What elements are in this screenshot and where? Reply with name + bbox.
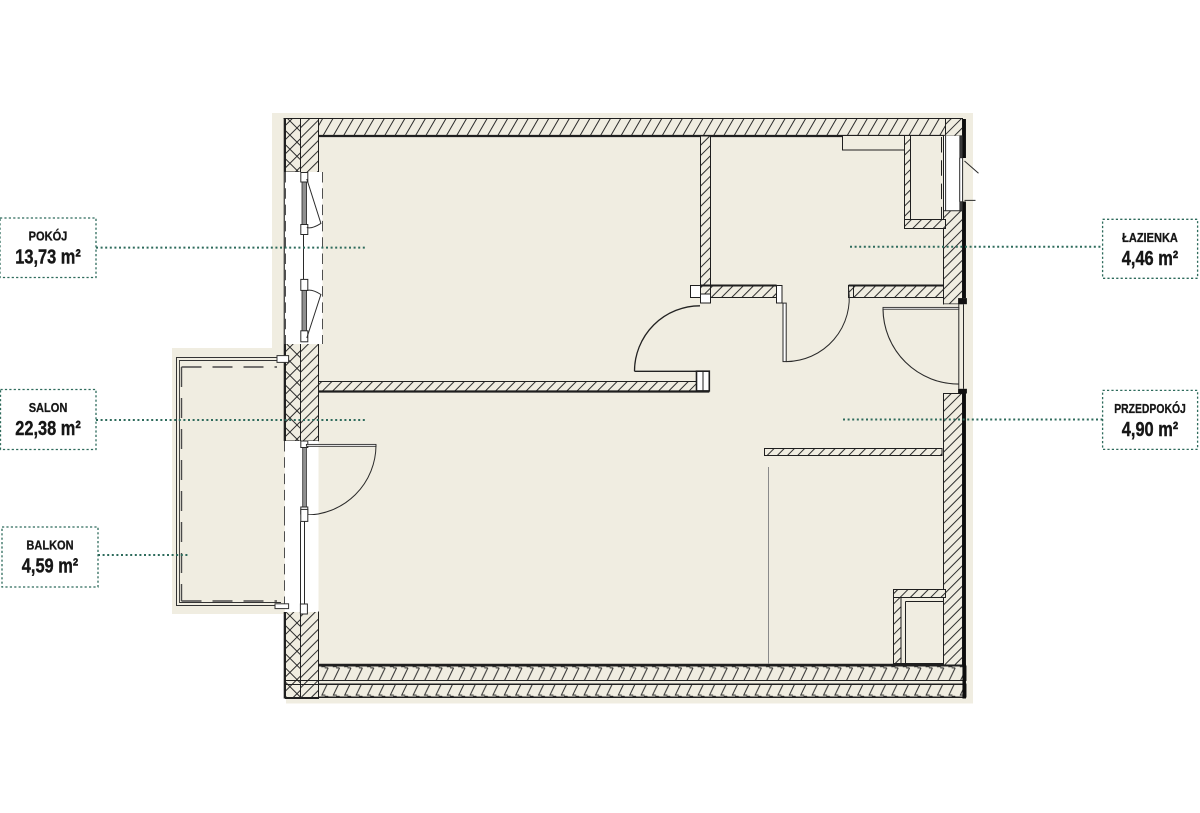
svg-text:POKÓJ: POKÓJ <box>29 228 68 244</box>
svg-text:13,73 m²: 13,73 m² <box>15 245 81 268</box>
svg-text:4,46 m²: 4,46 m² <box>1122 246 1178 269</box>
svg-text:4,59 m²: 4,59 m² <box>22 554 78 577</box>
svg-text:ŁAZIENKA: ŁAZIENKA <box>1122 230 1178 245</box>
svg-text:4,90 m²: 4,90 m² <box>1122 417 1178 440</box>
svg-text:PRZEDPOKÓJ: PRZEDPOKÓJ <box>1114 402 1186 416</box>
svg-text:SALON: SALON <box>29 400 68 415</box>
svg-text:BALKON: BALKON <box>26 538 73 553</box>
svg-text:22,38 m²: 22,38 m² <box>15 416 81 439</box>
